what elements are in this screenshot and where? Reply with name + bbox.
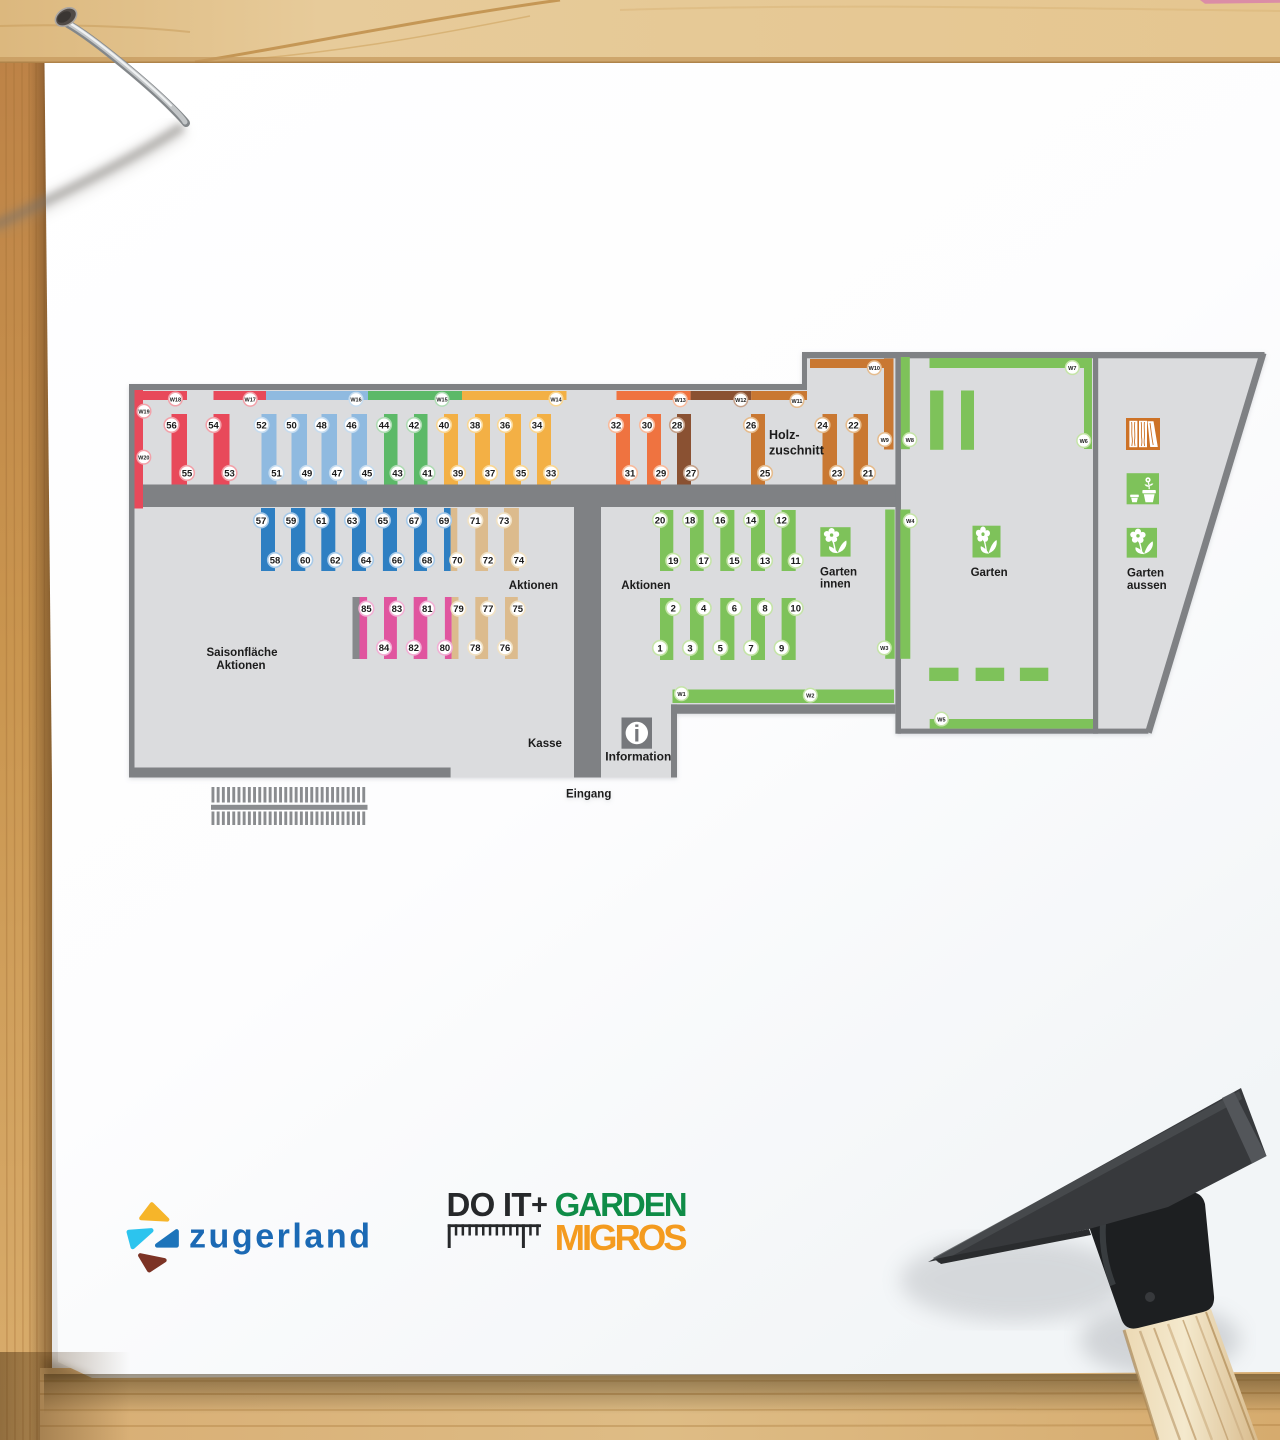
svg-text:71: 71 (470, 516, 481, 527)
svg-text:35: 35 (516, 468, 527, 479)
svg-text:30: 30 (642, 420, 653, 431)
svg-text:76: 76 (500, 643, 511, 654)
svg-text:18: 18 (685, 515, 696, 526)
svg-text:W5: W5 (937, 717, 945, 723)
svg-text:MIGROS: MIGROS (555, 1217, 688, 1258)
svg-text:9: 9 (779, 643, 784, 654)
svg-text:W9: W9 (881, 438, 889, 444)
svg-text:11: 11 (791, 556, 802, 567)
svg-text:77: 77 (483, 604, 494, 615)
svg-text:74: 74 (514, 555, 525, 566)
svg-text:W13: W13 (675, 398, 686, 404)
svg-text:DO IT: DO IT (447, 1186, 532, 1223)
svg-text:64: 64 (361, 555, 372, 566)
svg-text:73: 73 (499, 516, 510, 527)
svg-text:48: 48 (316, 420, 327, 431)
svg-text:36: 36 (500, 420, 511, 431)
svg-text:Garten: Garten (971, 567, 1008, 579)
svg-text:75: 75 (513, 604, 524, 615)
svg-text:W10: W10 (869, 366, 880, 372)
svg-text:31: 31 (625, 468, 636, 479)
svg-text:84: 84 (379, 643, 390, 654)
svg-text:27: 27 (686, 468, 697, 479)
svg-text:10: 10 (790, 603, 801, 614)
svg-text:W17: W17 (245, 398, 256, 404)
svg-text:25: 25 (760, 468, 771, 479)
svg-text:28: 28 (672, 420, 683, 431)
svg-text:79: 79 (453, 604, 464, 615)
svg-text:17: 17 (698, 556, 709, 567)
svg-text:57: 57 (256, 516, 267, 527)
svg-text:W12: W12 (735, 398, 746, 404)
svg-text:Information: Information (605, 750, 671, 764)
svg-text:i: i (634, 721, 640, 747)
svg-text:23: 23 (832, 468, 843, 479)
svg-text:Saisonfläche: Saisonfläche (207, 647, 278, 659)
svg-text:69: 69 (439, 516, 450, 527)
svg-text:8: 8 (762, 603, 767, 614)
svg-text:60: 60 (300, 555, 311, 566)
svg-text:81: 81 (422, 604, 433, 615)
svg-text:38: 38 (470, 420, 481, 431)
svg-text:15: 15 (729, 556, 740, 567)
svg-text:29: 29 (656, 468, 667, 479)
svg-text:53: 53 (224, 468, 235, 479)
svg-text:aussen: aussen (1127, 580, 1167, 592)
svg-text:58: 58 (270, 555, 281, 566)
svg-text:W4: W4 (906, 519, 915, 525)
svg-text:80: 80 (440, 643, 451, 654)
svg-text:52: 52 (256, 420, 267, 431)
svg-text:innen: innen (820, 579, 851, 591)
svg-text:51: 51 (271, 468, 282, 479)
svg-text:W16: W16 (350, 398, 361, 404)
svg-text:4: 4 (701, 603, 707, 614)
svg-text:37: 37 (485, 468, 496, 479)
svg-text:68: 68 (422, 555, 433, 566)
svg-text:W6: W6 (1080, 439, 1088, 445)
svg-text:W19: W19 (138, 410, 149, 416)
svg-text:13: 13 (760, 556, 771, 567)
svg-text:40: 40 (439, 420, 450, 431)
svg-text:42: 42 (409, 420, 420, 431)
svg-text:19: 19 (668, 556, 679, 567)
svg-text:67: 67 (409, 516, 420, 527)
svg-text:2: 2 (671, 603, 676, 614)
svg-text:W14: W14 (550, 397, 562, 403)
svg-text:3: 3 (687, 643, 692, 654)
svg-text:W7: W7 (1068, 366, 1076, 372)
svg-text:47: 47 (332, 468, 343, 479)
svg-text:85: 85 (361, 604, 372, 615)
svg-text:22: 22 (848, 420, 859, 431)
svg-text:66: 66 (392, 555, 403, 566)
svg-text:43: 43 (392, 468, 403, 479)
svg-text:5: 5 (718, 643, 724, 654)
svg-text:24: 24 (817, 420, 828, 431)
svg-text:45: 45 (362, 468, 373, 479)
svg-text:W11: W11 (791, 399, 802, 405)
svg-text:34: 34 (532, 420, 543, 431)
svg-text:Aktionen: Aktionen (621, 580, 670, 592)
svg-text:59: 59 (286, 516, 297, 527)
svg-text:62: 62 (330, 555, 341, 566)
svg-text:1: 1 (657, 643, 663, 654)
svg-text:78: 78 (470, 643, 481, 654)
svg-text:Kasse: Kasse (528, 738, 562, 750)
svg-text:W15: W15 (436, 398, 447, 404)
svg-text:82: 82 (408, 643, 419, 654)
svg-text:56: 56 (166, 420, 177, 431)
svg-text:Aktionen: Aktionen (216, 660, 265, 672)
svg-text:49: 49 (302, 468, 313, 479)
svg-text:W8: W8 (906, 438, 914, 444)
svg-text:54: 54 (208, 420, 219, 431)
svg-text:zuschnitt: zuschnitt (769, 444, 825, 458)
svg-text:W18: W18 (170, 397, 181, 403)
svg-text:20: 20 (655, 515, 666, 526)
svg-text:+: + (531, 1190, 548, 1222)
svg-text:21: 21 (863, 468, 874, 479)
svg-text:W3: W3 (880, 646, 888, 652)
svg-text:zugerland: zugerland (189, 1217, 370, 1255)
svg-text:7: 7 (748, 643, 753, 654)
svg-text:14: 14 (746, 515, 757, 526)
svg-text:61: 61 (316, 516, 327, 527)
svg-text:Eingang: Eingang (566, 788, 611, 800)
svg-text:33: 33 (546, 468, 557, 479)
svg-text:65: 65 (378, 516, 389, 527)
svg-text:50: 50 (286, 420, 297, 431)
svg-text:W20: W20 (138, 456, 149, 462)
svg-text:Aktionen: Aktionen (509, 580, 558, 592)
svg-text:26: 26 (746, 420, 757, 431)
svg-text:44: 44 (379, 420, 390, 431)
svg-text:41: 41 (422, 468, 433, 479)
svg-text:W1: W1 (677, 692, 685, 698)
svg-text:12: 12 (776, 515, 787, 526)
svg-text:63: 63 (347, 516, 358, 527)
svg-text:W2: W2 (806, 694, 814, 700)
svg-text:39: 39 (453, 468, 464, 479)
svg-text:Garten: Garten (820, 566, 857, 578)
svg-text:6: 6 (732, 603, 737, 614)
svg-text:16: 16 (715, 515, 726, 526)
svg-text:83: 83 (392, 604, 403, 615)
svg-text:Garten: Garten (1127, 567, 1164, 579)
svg-text:32: 32 (611, 420, 622, 431)
svg-text:46: 46 (346, 420, 357, 431)
svg-text:70: 70 (452, 555, 463, 566)
svg-text:Holz-: Holz- (769, 428, 800, 442)
svg-text:55: 55 (182, 468, 193, 479)
svg-text:72: 72 (483, 555, 494, 566)
